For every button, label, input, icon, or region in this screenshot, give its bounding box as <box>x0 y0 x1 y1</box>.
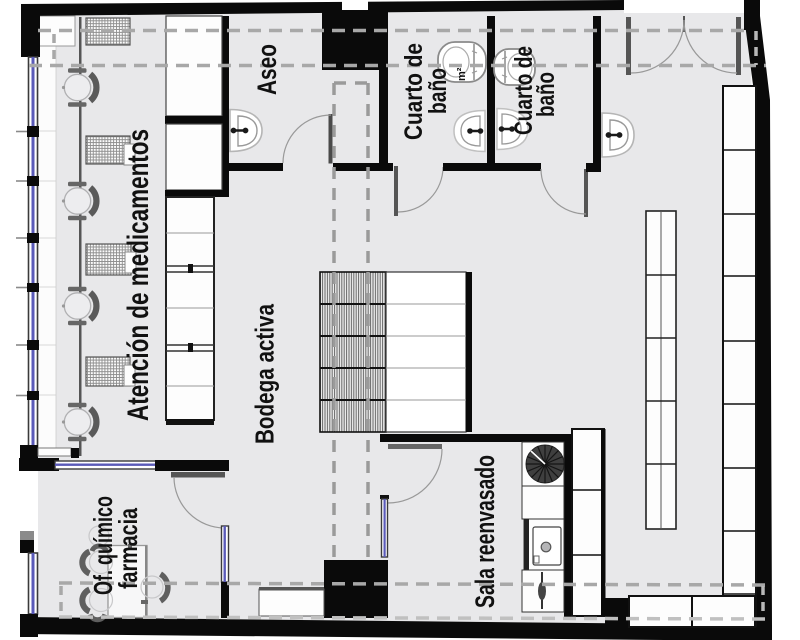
svg-text:Sala reenvasado: Sala reenvasado <box>470 455 500 608</box>
svg-text:baño: baño <box>532 72 560 117</box>
svg-text:Aseo: Aseo <box>252 44 282 95</box>
svg-text:baño: baño <box>424 68 452 114</box>
svg-text:Atención de medicamentos: Atención de medicamentos <box>122 129 155 421</box>
svg-text:m²: m² <box>456 67 468 81</box>
svg-text:Bodega activa: Bodega activa <box>250 304 280 444</box>
svg-text:farmacia: farmacia <box>113 508 143 589</box>
